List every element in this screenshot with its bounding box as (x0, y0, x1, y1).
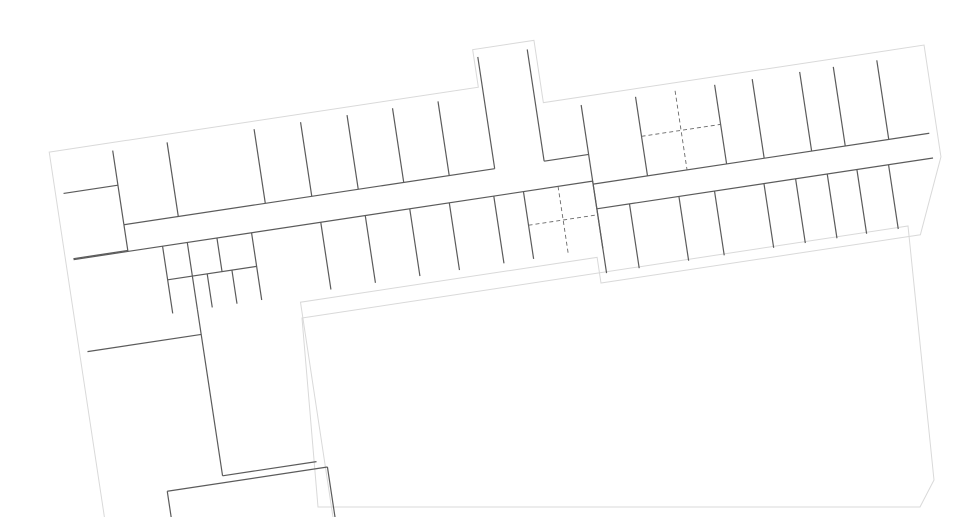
interior-wall (597, 158, 933, 209)
interior-wall (827, 174, 837, 238)
interior-wall (113, 151, 124, 225)
interior-wall (833, 67, 845, 146)
interior-wall (365, 216, 375, 283)
interior-wall (124, 225, 128, 252)
interior-wall (449, 203, 459, 270)
adjacent-building-outline (302, 226, 934, 507)
interior-wall (254, 129, 265, 203)
interior-wall (87, 334, 201, 351)
interior-wall (197, 310, 222, 476)
floor-plan-svg (0, 0, 960, 517)
building-plan-group (44, 0, 960, 517)
interior-wall (393, 108, 404, 182)
interior-wall (301, 122, 312, 196)
interior-wall (679, 196, 689, 260)
partition-dashed-wall (642, 124, 721, 136)
partition-dashed-wall (675, 91, 687, 170)
interior-wall (478, 57, 495, 169)
interior-wall (167, 491, 177, 517)
interior-wall (168, 266, 257, 279)
interior-wall (410, 209, 420, 276)
interior-wall (889, 165, 899, 229)
interior-wall (232, 270, 237, 304)
site-outline-layer (302, 226, 934, 507)
partition-dashed-wall (529, 215, 598, 225)
floor-plan-canvas (0, 0, 960, 517)
interior-wall (321, 222, 331, 289)
interior-wall (629, 204, 639, 268)
interior-wall (544, 154, 588, 161)
interior-wall (800, 72, 812, 151)
facade-offset-line (44, 0, 960, 517)
interior-wall (581, 105, 606, 273)
interior-wall (167, 142, 178, 216)
interior-wall (752, 79, 764, 158)
interior-wall (207, 274, 212, 308)
interior-wall (438, 101, 449, 175)
interior-wall (217, 238, 222, 272)
interior-wall (877, 60, 889, 139)
interior-wall (64, 185, 118, 193)
interior-wall (494, 196, 504, 263)
interior-wall (167, 467, 327, 491)
interior-wall (764, 184, 774, 248)
interior-wall (73, 250, 127, 258)
interior-wall (527, 49, 544, 161)
interior-wall (715, 191, 725, 255)
interior-wall (796, 179, 806, 243)
interior-wall (223, 462, 317, 476)
interior-wall (857, 170, 867, 234)
interior-wall (347, 115, 358, 189)
